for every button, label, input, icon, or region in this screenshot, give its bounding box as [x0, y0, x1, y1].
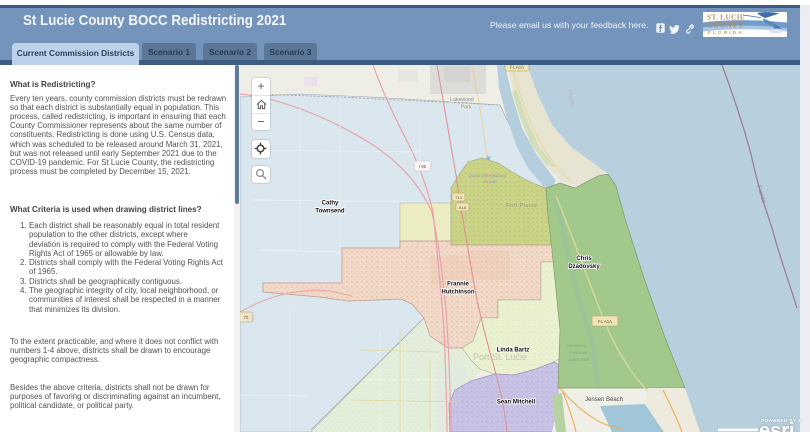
svg-text:Jensen Beach: Jensen Beach	[585, 397, 623, 403]
svg-text:COUNTY: COUNTY	[707, 21, 744, 30]
svg-text:Townsend: Townsend	[315, 209, 345, 215]
svg-text:Fort Pierce: Fort Pierce	[506, 203, 538, 209]
svg-text:Preserve: Preserve	[569, 350, 588, 355]
svg-text:Park: Park	[461, 105, 472, 111]
svg-text:State Park: State Park	[568, 357, 590, 362]
svg-text:FLORIDA: FLORIDA	[708, 30, 744, 35]
svg-text:Airport: Airport	[482, 179, 497, 184]
svg-text:Cathy: Cathy	[322, 201, 339, 207]
svg-text:Coast International: Coast International	[468, 173, 507, 178]
svg-text:Lakewood: Lakewood	[450, 97, 474, 103]
svg-text:Hutchinson: Hutchinson	[442, 290, 475, 296]
svg-text:Linda Bartz: Linda Bartz	[497, 348, 530, 354]
svg-text:713: 713	[455, 195, 462, 200]
svg-text:I 95: I 95	[419, 164, 427, 169]
svg-text:Frannie: Frannie	[447, 282, 469, 288]
svg-text:Chris: Chris	[576, 256, 592, 262]
svg-text:70: 70	[244, 315, 249, 320]
svg-text:FL A1A: FL A1A	[598, 319, 612, 324]
svg-text:Dzadovsky: Dzadovsky	[568, 264, 600, 270]
svg-text:A1A: A1A	[459, 205, 467, 210]
svg-text:FL A1A: FL A1A	[510, 65, 524, 70]
svg-text:Sean Mitchell: Sean Mitchell	[497, 400, 536, 406]
svg-text:Port St. Lucie: Port St. Lucie	[473, 352, 527, 362]
svg-text:Savannas: Savannas	[567, 343, 588, 348]
